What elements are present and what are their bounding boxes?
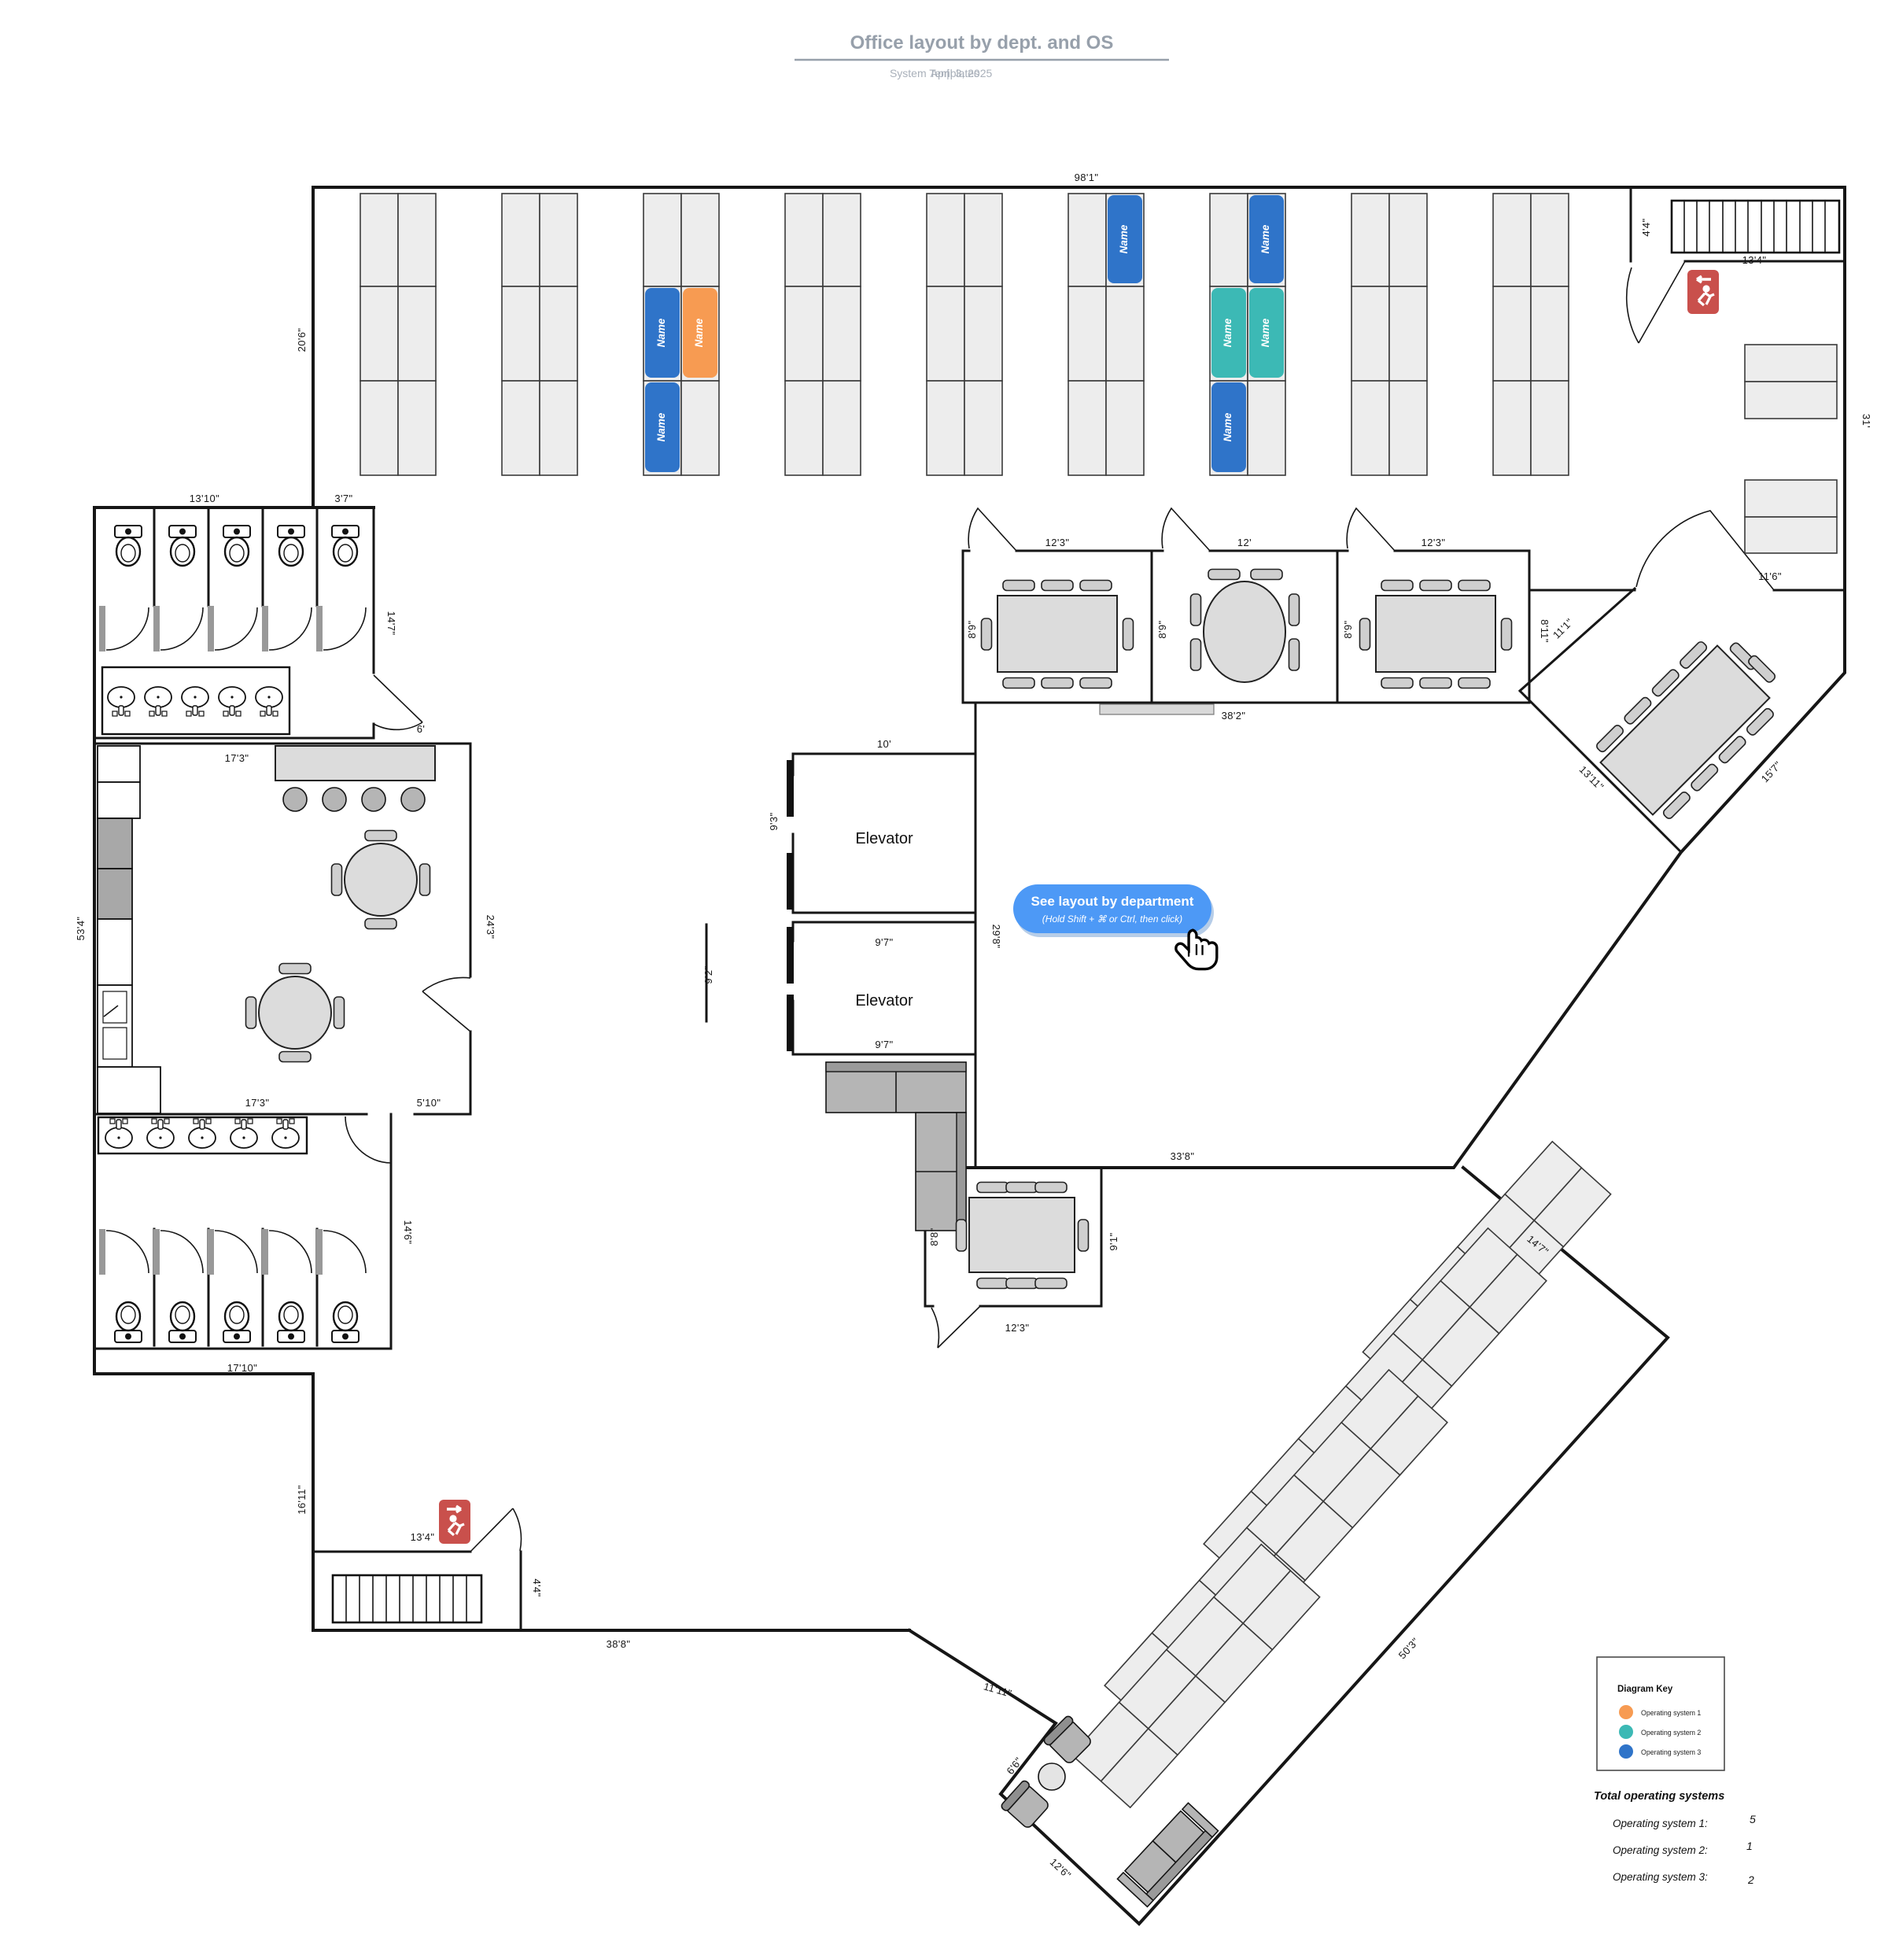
svg-text:Name[interactable]: Name [1259,318,1271,347]
credenza [1100,704,1214,714]
dim-label: 13'4" [411,1531,435,1543]
elevator-block: Elevator Elevator [855,830,913,1010]
os1-swatch [1619,1705,1633,1719]
dim-label: 3'7" [334,493,352,504]
conference-table [969,1198,1075,1272]
totals-row-value: 2 [1747,1873,1754,1886]
totals-row-label: Operating system 3: [1613,1871,1708,1883]
door-stairs-bl [470,1508,522,1552]
header-date: April 3, 2025 [931,67,993,79]
dim-label: 50'3" [1396,1636,1422,1662]
stall-door [99,1229,105,1275]
dim-label: 9'1" [1108,1232,1119,1250]
conference-table [1376,596,1495,672]
svg-text:Name[interactable]: Name [1259,224,1271,253]
bathroom-bottom-fixtures [98,1117,366,1342]
dim-label: 14'6" [402,1220,414,1245]
bottom-meeting-room [957,1183,1089,1289]
dim-label: 8'11" [1539,619,1551,643]
dim-label: 12' [1237,537,1252,548]
dim-label: 11'6" [1758,570,1782,582]
svg-text:Name[interactable]: Name [655,318,667,347]
floor-plan-canvas: Office layout by dept. and OS System Tem… [0,0,1888,1960]
elevator-door-jamb [787,760,794,817]
dim-label: 12'3" [1045,537,1070,548]
header: Office layout by dept. and OS System Tem… [795,32,1169,79]
round-table-2 [246,964,345,1062]
os3-swatch [1619,1744,1633,1759]
totals: Total operating systems Operating system… [1594,1790,1756,1886]
totals-row-label: Operating system 2: [1613,1844,1708,1856]
stall-door [262,1229,268,1275]
stall-door [99,606,105,651]
svg-text:Name[interactable]: Name [1222,318,1233,347]
legend-item-label: Operating system 1 [1641,1709,1701,1717]
dim-label: 17'3" [225,752,249,764]
stall-door [316,1229,323,1275]
dim-label: 20'6" [296,328,308,353]
meeting-room-a [982,581,1134,688]
exit-sign-bottom-left [439,1500,470,1544]
dim-label: 11'1" [1551,616,1576,641]
legend-item-label: Operating system 2 [1641,1729,1701,1737]
cabinet [98,746,140,782]
counter-corner [98,1067,160,1113]
stairs-bottom-left [333,1575,481,1622]
doors-meeting-band [968,508,1395,551]
sink-basin [103,1028,127,1059]
dim-label: 8'9" [1342,620,1354,638]
os2-swatch [1619,1725,1633,1739]
elevator-door-jamb [787,927,794,984]
desk-chip-os3[interactable]: Name [1249,195,1284,283]
dim-label: 13'10" [190,493,219,504]
dim-label: 4'4" [1640,218,1652,236]
door-bottom-meeting [931,1306,980,1348]
dim-label: 8'9" [1156,620,1168,638]
desk-chip-os2[interactable]: Name [1211,288,1246,378]
dim-label: 38'2" [1222,710,1246,722]
bathroom-top-fixtures [99,526,366,734]
page-title: Office layout by dept. and OS [850,32,1114,54]
dim-label: 17'3" [245,1097,270,1109]
door-stairs-tr [1627,261,1685,343]
stall-door [316,606,323,651]
svg-text:Name[interactable]: Name [693,318,705,347]
bar-counter [275,746,435,781]
conference-table [1601,646,1770,815]
meeting-room-c [1360,581,1512,688]
dim-label: 12'3" [1422,537,1446,548]
totals-row-value: 5 [1750,1813,1756,1825]
svg-text:Name[interactable]: Name [1118,224,1130,253]
sink-basin [103,991,127,1023]
svg-text:(Hold Shift + ⌘ or Ctrl, then[interactable]: (Hold Shift + ⌘ or Ctrl, then click) [1042,914,1182,925]
appliance [98,869,132,919]
stall-door [153,1229,160,1275]
dim-label: 10' [877,738,891,750]
totals-row-value: 1 [1746,1840,1753,1852]
stall-door [208,1229,214,1275]
meeting-room-b [1191,570,1300,683]
door-bathroom-bottom [345,1116,391,1163]
totals-title: Total operating systems [1594,1790,1724,1803]
dim-label: 9'3" [768,812,780,830]
dim-label: 29'8" [990,925,1002,949]
dim-label: 9'2" [702,965,714,984]
dim-label: 9'7" [875,936,893,948]
legend-item-label: Operating system 3 [1641,1748,1701,1756]
oval-table [1204,581,1285,682]
dim-label: 31' [1860,414,1872,428]
door-bathroom-top [374,675,422,729]
sectional-couch [826,1062,966,1231]
desk-chip-os3[interactable]: Name [1211,382,1246,472]
cabinet [98,782,140,818]
diamond-conference-room [1590,621,1795,826]
elevator-a-label: Elevator [855,830,913,847]
elevator-door-jamb [787,995,794,1051]
dim-label: 38'8" [607,1638,631,1650]
dim-label: 13'11" [1577,763,1606,792]
svg-text:See layout by department[interactable]: See layout by department [1031,894,1194,909]
totals-row-label: Operating system 1: [1613,1818,1708,1829]
dim-label: 24'3" [485,915,496,939]
stairs-top-right [1672,201,1839,253]
desk-chip-os1[interactable]: Name [683,288,717,378]
exit-sign-top-right [1687,270,1719,314]
elevator-b-label: Elevator [855,992,913,1010]
door-kitchen-right [422,977,470,1032]
stall-door [153,606,160,651]
dim-label: 33'8" [1171,1150,1195,1162]
desk-chip-os3[interactable]: Name [645,288,680,378]
svg-text:Name[interactable]: Name [655,412,667,441]
kitchen [98,746,435,1113]
counter [98,919,132,985]
desk-chip-os2[interactable]: Name [1249,288,1284,378]
desk-chip-os3[interactable]: Name [1108,195,1142,283]
dim-label: 6' [417,723,426,735]
svg-text:Name[interactable]: Name [1222,412,1233,441]
dim-label: 12'3" [1005,1322,1030,1334]
top-desk-rows [360,194,1569,475]
dim-label: 17'10" [227,1362,257,1374]
dim-label: 13'4" [1742,254,1767,266]
diagram-key: Diagram Key Operating system 1 Operating… [1597,1657,1724,1770]
dim-label: 8'9" [966,620,978,638]
callout-button[interactable]: See layout by department (Hold Shift + ⌘… [1013,884,1214,937]
dim-label: 14'7" [385,611,397,636]
dim-label: 11'11" [983,1680,1013,1699]
elevator-door-jamb [787,853,794,910]
dim-label: 98'1" [1075,172,1099,183]
side-table [1038,1763,1065,1790]
dim-label: 53'4" [75,917,87,941]
dim-label: 16'11" [296,1485,308,1514]
dim-label: 8'8" [928,1227,940,1246]
stall-door [262,606,268,651]
dim-label: 9'7" [875,1039,893,1050]
conference-table [997,596,1117,672]
dim-label: 6'6" [1004,1755,1024,1776]
round-table-1 [332,831,430,929]
appliance [98,818,132,869]
top-right-desks [1745,345,1837,553]
desk-chip-os3[interactable]: Name [645,382,680,472]
stall-door [208,606,214,651]
legend-title: Diagram Key [1617,1685,1673,1694]
dim-label: 5'10" [417,1097,441,1109]
dim-label: 4'4" [531,1578,543,1596]
